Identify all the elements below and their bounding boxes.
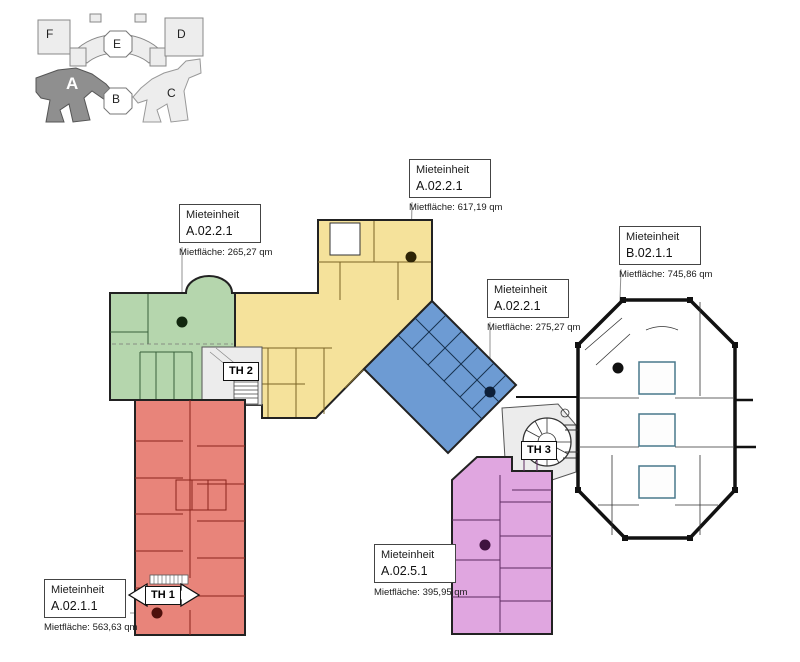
keyplan-letter-a: A: [66, 74, 78, 94]
unit-area: Mietfläche: 617,19 qm: [409, 202, 502, 213]
unit-label-box: Mieteinheit A.02.5.1: [374, 544, 456, 583]
unit-title: Mieteinheit: [626, 230, 694, 245]
keyplan-arch-stub-right: [150, 48, 166, 66]
keyplan-letter-d: D: [177, 27, 186, 41]
dot-yellow: [406, 252, 417, 263]
dot-purple: [480, 540, 491, 551]
unit-label-box: Mieteinheit B.02.1.1: [619, 226, 701, 265]
unit-label-b-building: Mieteinheit B.02.1.1 Mietfläche: 745,86 …: [619, 226, 712, 280]
unit-label-blue: Mieteinheit A.02.2.1 Mietfläche: 275,27 …: [487, 279, 580, 333]
b-building-atriums: [639, 362, 675, 498]
unit-title: Mieteinheit: [416, 163, 484, 178]
unit-label-box: Mieteinheit A.02.2.1: [487, 279, 569, 318]
unit-code: A.02.2.1: [494, 298, 562, 314]
unit-label-red: Mieteinheit A.02.1.1 Mietfläche: 563,63 …: [44, 579, 137, 633]
unit-title: Mieteinheit: [51, 583, 119, 598]
unit-label-box: Mieteinheit A.02.2.1: [179, 204, 261, 243]
unit-label-green: Mieteinheit A.02.2.1 Mietfläche: 265,27 …: [179, 204, 272, 258]
unit-title: Mieteinheit: [494, 283, 562, 298]
unit-code: A.02.2.1: [416, 178, 484, 194]
unit-code: B.02.1.1: [626, 245, 694, 261]
unit-area: Mietfläche: 265,27 qm: [179, 247, 272, 258]
unit-code: A.02.1.1: [51, 598, 119, 614]
unit-title: Mieteinheit: [381, 548, 449, 563]
unit-area: Mietfläche: 395,95 qm: [374, 587, 467, 598]
unit-label-box: Mieteinheit A.02.1.1: [44, 579, 126, 618]
keyplan-building-f: [38, 20, 70, 54]
keyplan-arch-bump-left: [90, 14, 101, 22]
unit-code: A.02.2.1: [186, 223, 254, 239]
unit-title: Mieteinheit: [186, 208, 254, 223]
dot-green: [177, 317, 188, 328]
keyplan-arch-bump-right: [135, 14, 146, 22]
yellow-shaft-room: [330, 223, 360, 255]
b-building-terrace-walls: [735, 400, 756, 447]
stair-label-th2: TH 2: [223, 362, 259, 381]
stair-label-th3: TH 3: [521, 441, 557, 460]
unit-label-yellow: Mieteinheit A.02.2.1 Mietfläche: 617,19 …: [409, 159, 502, 213]
dot-blue: [485, 387, 496, 398]
keyplan-letter-c: C: [167, 86, 176, 100]
keyplan-arch-stub-left: [70, 48, 86, 66]
dot-b-building: [613, 363, 624, 374]
dot-red: [152, 608, 163, 619]
unit-label-purple: Mieteinheit A.02.5.1 Mietfläche: 395,95 …: [374, 544, 467, 598]
stair-label-th1: TH 1: [145, 586, 181, 605]
unit-code: A.02.5.1: [381, 563, 449, 579]
floor-plan-page: F E D A B C Mieteinheit A.02.2.1 Mietflä…: [0, 0, 800, 662]
unit-area: Mietfläche: 563,63 qm: [44, 622, 137, 633]
unit-label-box: Mieteinheit A.02.2.1: [409, 159, 491, 198]
keyplan-letter-e: E: [113, 37, 121, 51]
keyplan-letter-f: F: [46, 27, 53, 41]
unit-area: Mietfläche: 275,27 qm: [487, 322, 580, 333]
unit-area: Mietfläche: 745,86 qm: [619, 269, 712, 280]
keyplan-letter-b: B: [112, 92, 120, 106]
